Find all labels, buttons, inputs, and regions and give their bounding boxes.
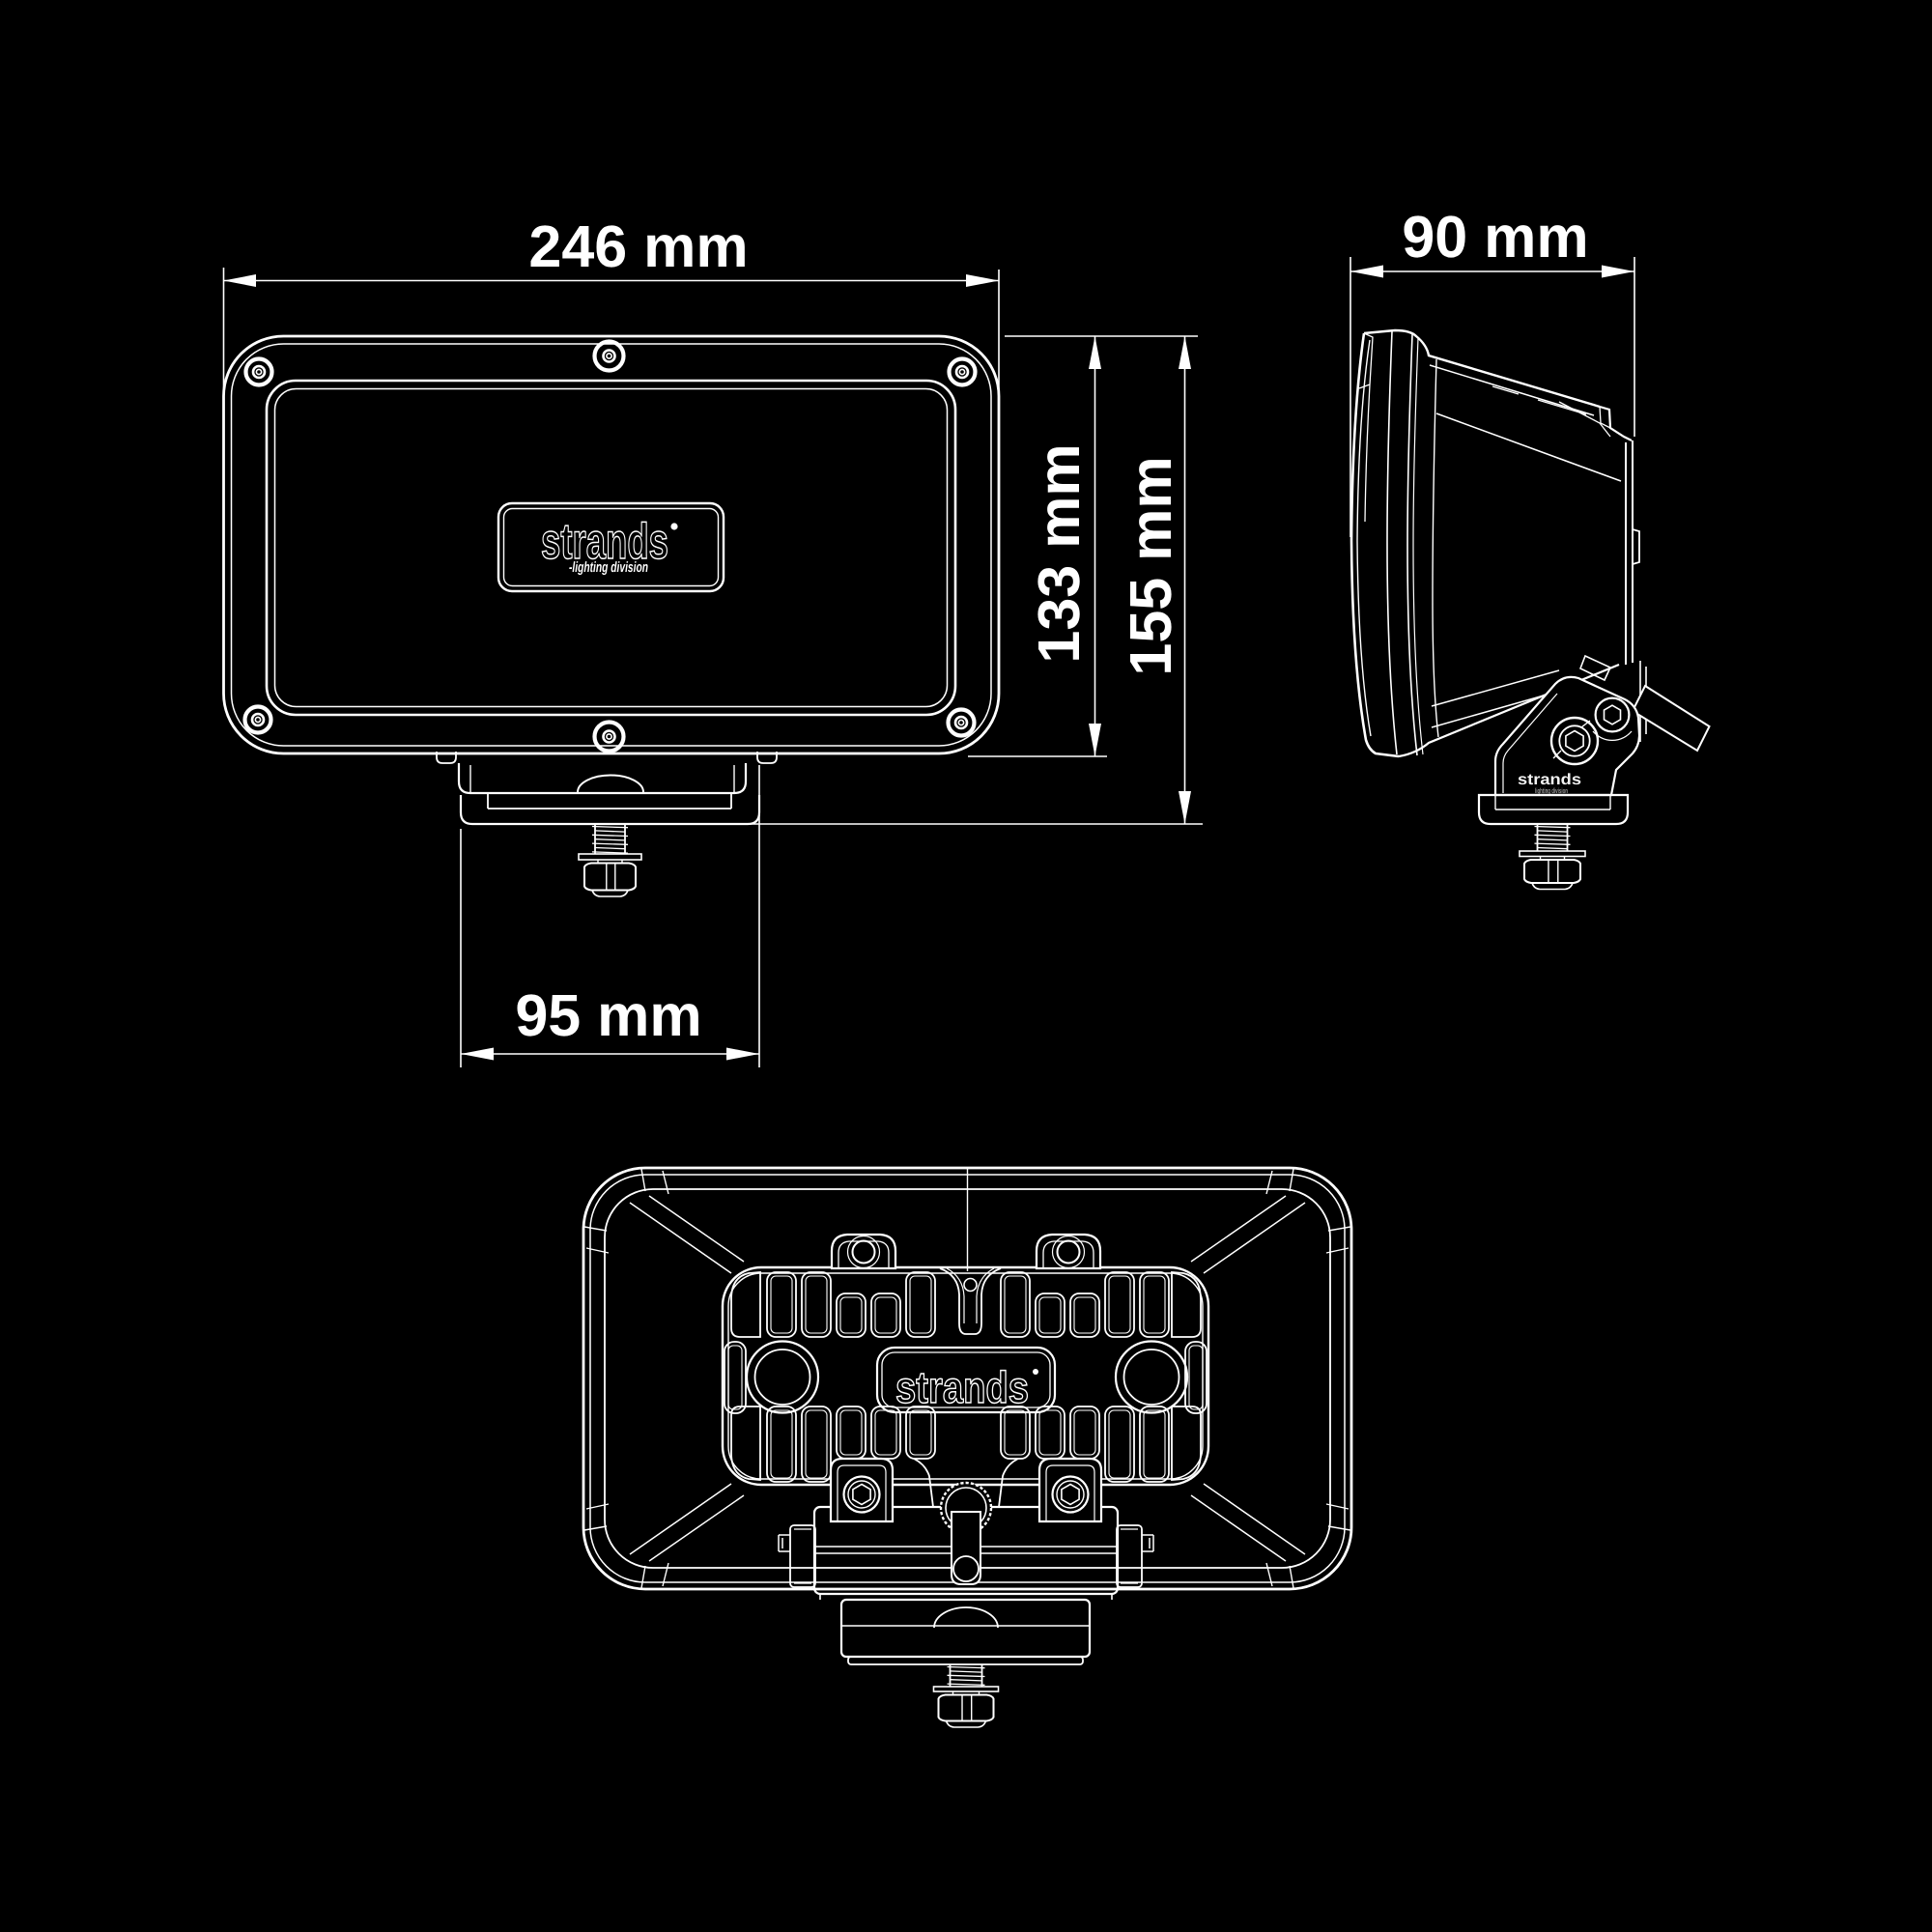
svg-text:155 mm: 155 mm [1118, 456, 1183, 675]
svg-text:strands: strands [895, 1362, 1029, 1412]
svg-text:95 mm: 95 mm [515, 982, 701, 1048]
svg-text:90 mm: 90 mm [1402, 204, 1588, 270]
svg-text:-lighting division: -lighting division [569, 559, 648, 576]
svg-text:133 mm: 133 mm [1026, 443, 1092, 663]
svg-text:lighting division: lighting division [1535, 786, 1568, 795]
svg-text:246 mm: 246 mm [528, 213, 748, 279]
